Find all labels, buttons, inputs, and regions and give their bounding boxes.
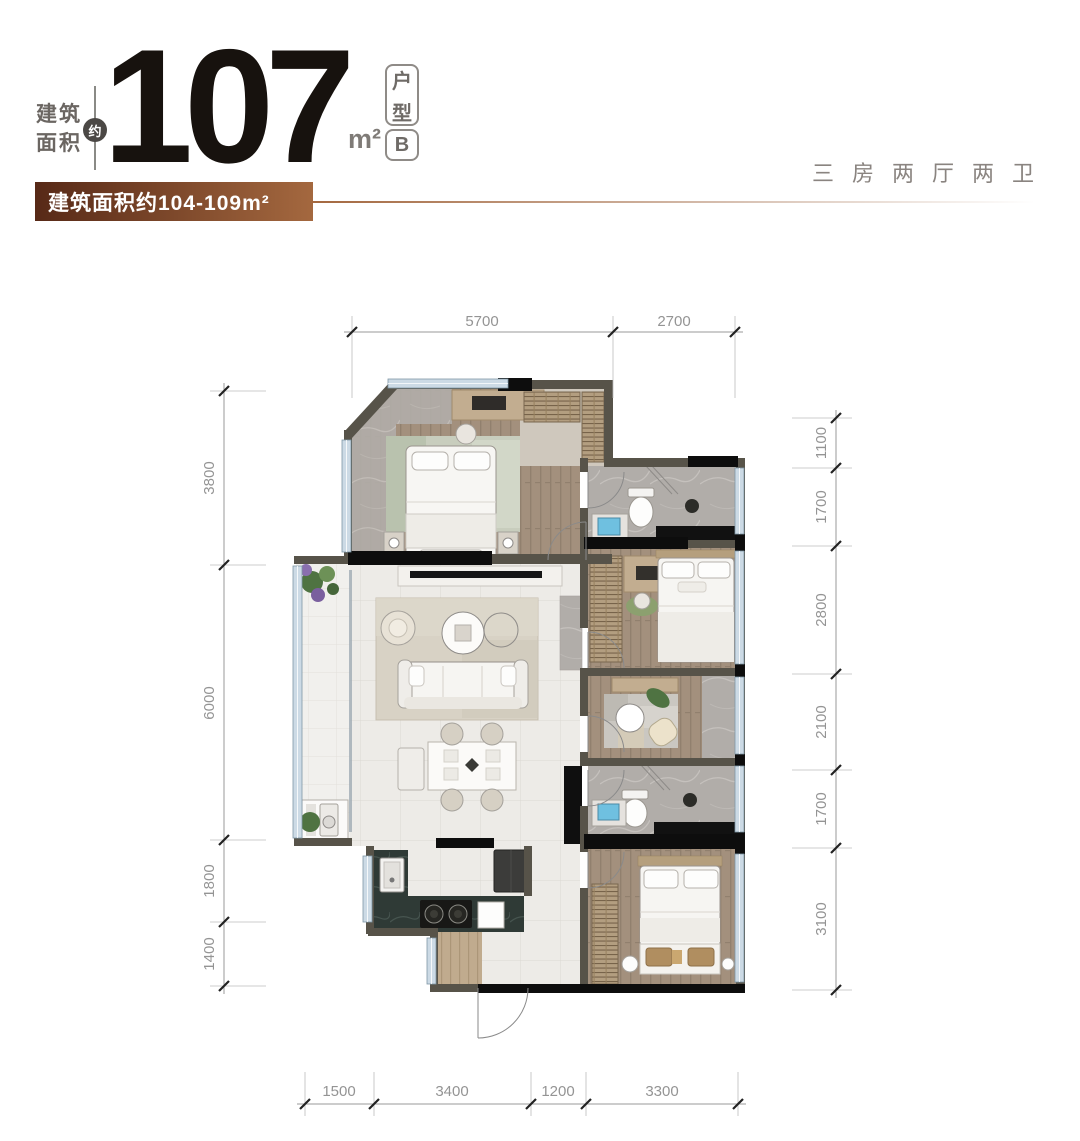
coffee-table-tray <box>455 625 471 641</box>
entry-door <box>478 988 528 1038</box>
wall-entry-bottom <box>430 984 478 992</box>
bedroom3-pillow-right <box>684 870 718 888</box>
window-bath2 <box>735 766 744 832</box>
dimension-label: 1200 <box>541 1083 574 1100</box>
accent-right-stub2 <box>735 664 745 677</box>
toilet-1 <box>629 497 653 527</box>
wall-study-bath2 <box>580 758 745 766</box>
bedroom2-pillow-left <box>662 562 694 578</box>
study-marble-strip <box>702 676 736 758</box>
toilet-tank-2 <box>622 790 648 799</box>
bedroom3-pillow-left <box>644 870 678 888</box>
dimension-label: 2800 <box>813 593 830 626</box>
bedroom-2 <box>590 550 736 662</box>
dresser-mirror <box>472 396 506 410</box>
accent-rightcol-top <box>688 456 738 467</box>
sink-basin-2 <box>598 804 619 820</box>
dimension-label: 2100 <box>813 705 830 738</box>
floor-plan: 5700 2700 1500 3400 1200 3300 3800 6000 … <box>0 0 1080 1141</box>
dimension-label: 1100 <box>813 427 830 459</box>
dimension-label: 2700 <box>657 313 690 330</box>
toilet-2 <box>623 799 647 827</box>
place-setting-1 <box>444 750 458 762</box>
place-setting-3 <box>444 768 458 780</box>
study-table <box>616 704 644 732</box>
closet-wardrobe-top <box>524 392 580 422</box>
master-pillow-right <box>454 452 490 470</box>
balcony-bush <box>300 812 320 832</box>
bedroom2-cushion <box>678 582 706 592</box>
bedroom3-brown-pillow-1 <box>646 948 672 966</box>
closet-wardrobe-right <box>582 392 604 462</box>
accent-kitchen-top <box>436 838 494 848</box>
dining-chair-4 <box>481 789 503 811</box>
bedroom2-monitor <box>636 566 658 580</box>
lamp-left <box>389 538 399 548</box>
dimension-label: 1500 <box>322 1083 355 1100</box>
bedroom3-blanket <box>640 918 720 942</box>
accent-bath2-bed3 <box>584 834 745 849</box>
window-master-left <box>342 440 351 552</box>
accent-tv-wall <box>348 551 492 565</box>
wall-bed2-study <box>580 668 745 676</box>
accent-right-stub1 <box>735 534 745 551</box>
bedroom2-pillow-right <box>698 562 730 578</box>
bedroom3-nightstand-right <box>722 958 734 970</box>
bedroom3-headboard <box>638 856 722 866</box>
master-bed-foot <box>406 514 496 548</box>
bedroom2-headboard <box>656 550 736 558</box>
toilet-tank-1 <box>628 488 654 497</box>
study-shelf <box>612 678 678 692</box>
burner-2-center <box>454 910 462 918</box>
window-kitchen <box>363 856 372 922</box>
dining-chair-3 <box>441 789 463 811</box>
cutting-board <box>478 902 504 928</box>
burner-1-center <box>430 910 438 918</box>
bedroom3-nightstand-left <box>622 956 638 972</box>
dining-bench <box>398 748 424 790</box>
wall-kitchen-hall <box>524 846 532 896</box>
dimension-label: 5700 <box>465 313 498 330</box>
window-entry <box>427 938 436 984</box>
accent-bottom-wall <box>478 984 745 993</box>
bedroom3-brown-pillow-2 <box>688 948 714 966</box>
window-balcony <box>293 566 302 838</box>
bath1-plant <box>685 499 699 513</box>
wall-balcony-top <box>294 556 352 564</box>
wall-corridor-1 <box>580 458 588 472</box>
washing-machine-door <box>323 816 335 828</box>
study-room <box>604 678 681 749</box>
balcony-plant-2 <box>319 566 335 582</box>
balcony-slider <box>349 570 352 832</box>
bedroom3-wardrobe <box>592 884 618 984</box>
dimension-label: 6000 <box>201 686 218 719</box>
bath2-plant <box>683 793 697 807</box>
sink-basin-1 <box>598 518 620 535</box>
window-master-top <box>388 379 508 388</box>
balcony-flower-1 <box>311 588 325 602</box>
utility-ledge <box>560 596 582 670</box>
bedroom3-knot-pillow <box>672 950 682 964</box>
dimension-label: 3800 <box>201 461 218 494</box>
bedroom2-chair <box>634 593 650 609</box>
kitchen-sink-basin <box>384 862 400 888</box>
tv-screen <box>410 571 542 578</box>
dimension-label: 3400 <box>435 1083 468 1100</box>
accent-right-stub3 <box>735 754 745 766</box>
sofa-back <box>404 697 522 709</box>
dimension-label: 1400 <box>201 937 218 970</box>
place-setting-2 <box>486 750 500 762</box>
balcony-plant-3 <box>327 583 339 595</box>
dining-chair-2 <box>481 723 503 745</box>
dimension-label: 1700 <box>813 490 830 523</box>
stool <box>456 424 476 444</box>
accent-bath1-bottom <box>584 537 688 549</box>
armchair-cushion <box>389 619 407 637</box>
wall-closet-right <box>604 380 613 466</box>
lamp-right <box>503 538 513 548</box>
dimension-label: 1800 <box>201 864 218 897</box>
kitchen-faucet <box>390 878 395 883</box>
entry-floor <box>436 932 482 986</box>
window-bedroom3 <box>735 854 744 982</box>
shaft-block <box>564 766 582 844</box>
wall-balcony-bottom <box>294 838 352 846</box>
accent-right-stub4 <box>735 832 745 854</box>
window-bedroom2 <box>735 551 744 664</box>
floorplan-page: { "header": { "area_label": {"line1": "建… <box>0 0 1080 1141</box>
wall-corridor-2 <box>580 508 588 628</box>
sofa-pillow-left <box>409 666 424 686</box>
bath2-counter <box>654 822 736 835</box>
dimension-label: 3100 <box>813 902 830 935</box>
wall-corridor-6 <box>580 888 588 990</box>
dimension-label: 1700 <box>813 792 830 825</box>
window-bath1 <box>735 468 744 534</box>
place-setting-4 <box>486 768 500 780</box>
master-pillow-left <box>412 452 448 470</box>
dining-chair-1 <box>441 723 463 745</box>
sofa-pillow-right <box>501 666 516 686</box>
bedroom2-blanket <box>658 612 734 662</box>
dimension-label: 3300 <box>645 1083 678 1100</box>
wall-kitchen-bottom <box>368 928 438 936</box>
window-study <box>735 677 744 754</box>
